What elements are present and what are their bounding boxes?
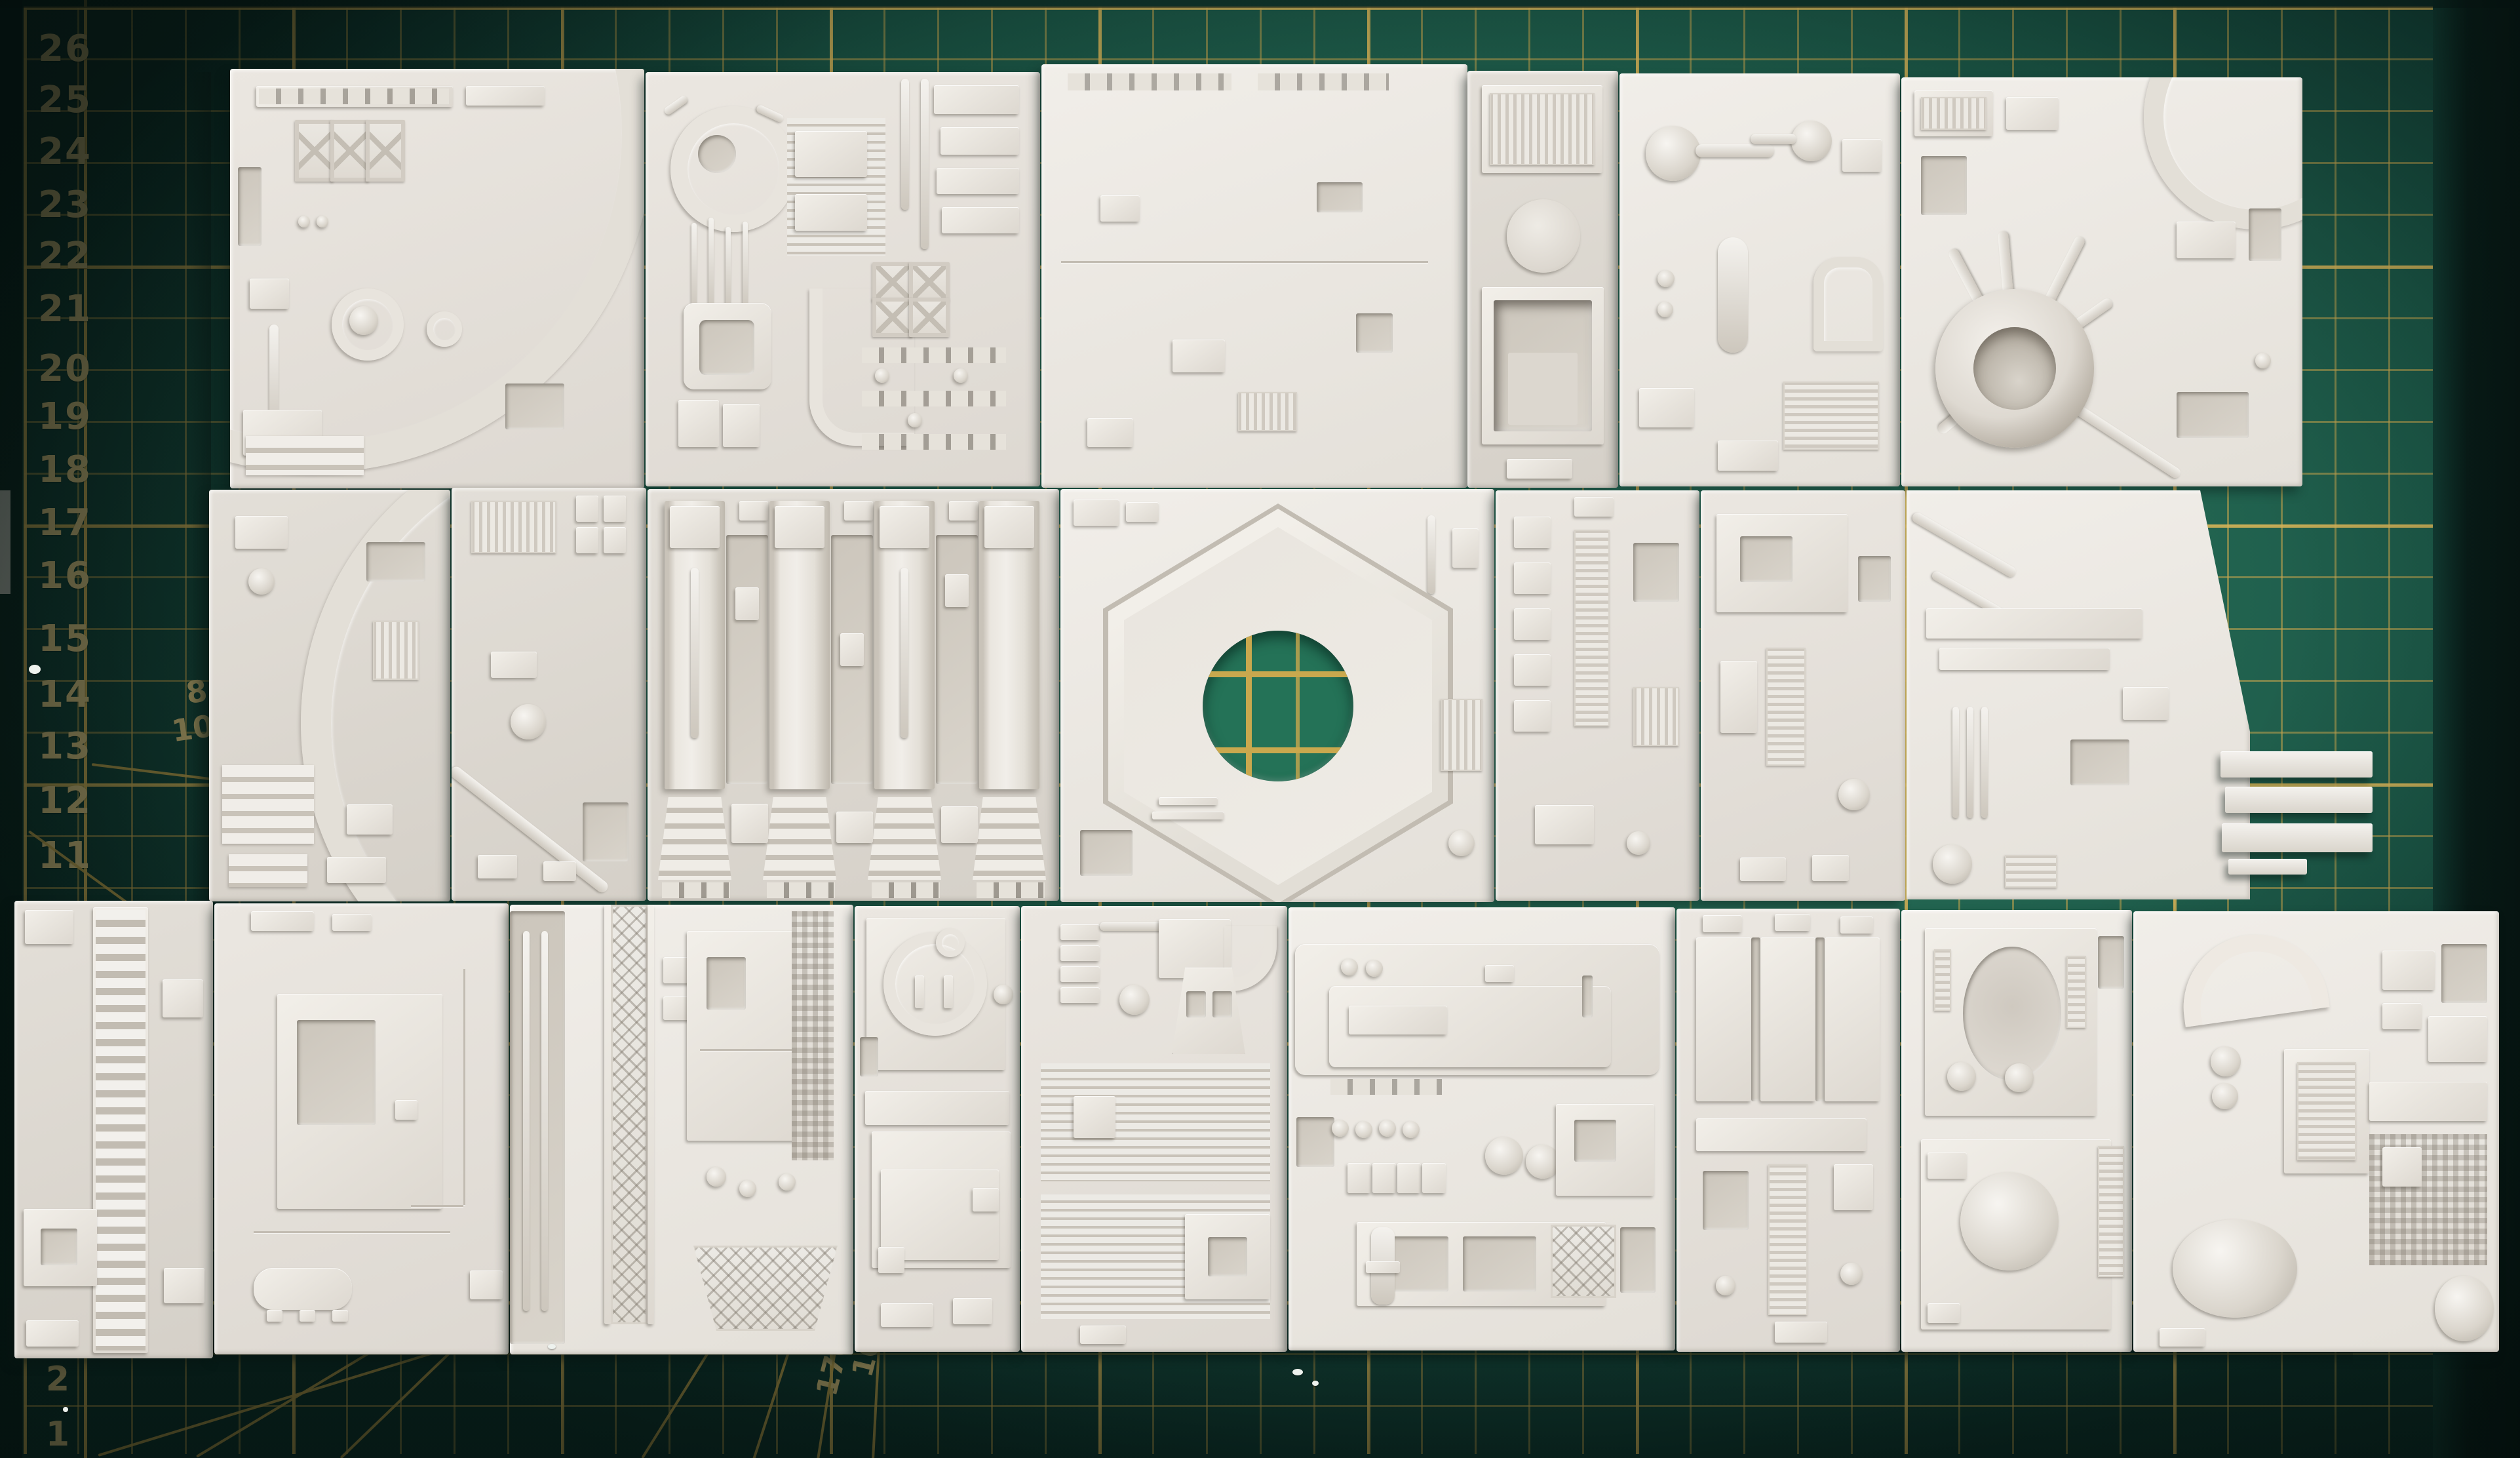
ruler-number: 17 bbox=[18, 502, 92, 544]
debris-speck bbox=[548, 1344, 556, 1349]
grid-line-through-hole bbox=[1203, 671, 1353, 677]
tile-oval-dome bbox=[1901, 910, 2132, 1352]
protruding-slat bbox=[2222, 823, 2373, 852]
slot-column bbox=[1768, 1164, 1808, 1315]
ring-button bbox=[936, 928, 965, 957]
tile-turret-ring-circuits bbox=[646, 72, 1040, 486]
debris-speck bbox=[63, 1407, 68, 1412]
tower-foot bbox=[973, 797, 1046, 880]
tile-domes-frame bbox=[1289, 907, 1675, 1350]
ruler-number: 12 bbox=[18, 779, 92, 822]
tile-greeble-columns bbox=[1496, 490, 1699, 901]
tile-truss-lattice bbox=[510, 905, 853, 1354]
ruler-number: 25 bbox=[18, 79, 92, 121]
tower-foot bbox=[658, 797, 731, 880]
arch-detail bbox=[1813, 257, 1883, 351]
crosshatch-box bbox=[366, 120, 405, 182]
window-slats bbox=[1490, 93, 1595, 165]
egg-dome bbox=[2435, 1276, 2494, 1341]
cylinder bbox=[1718, 237, 1748, 353]
debris-speck bbox=[29, 665, 41, 674]
ruler-number: 24 bbox=[18, 130, 92, 173]
tile-crater-spokes bbox=[1901, 77, 2302, 486]
table-edge-sliver bbox=[0, 490, 10, 594]
lattice-foot bbox=[693, 1246, 838, 1331]
ruler-number: 20 bbox=[18, 347, 92, 390]
oval-recess bbox=[1963, 947, 2061, 1080]
tile-vents-diagonal-pipe bbox=[452, 488, 646, 901]
tile-quarter-arc-crosshatch bbox=[230, 69, 644, 488]
hexagon-port-hole bbox=[1203, 631, 1353, 781]
large-dome bbox=[1485, 1137, 1523, 1175]
tile-hexagon-port bbox=[1060, 489, 1494, 902]
ladder-rungs bbox=[96, 910, 145, 1350]
large-dome bbox=[2173, 1219, 2297, 1318]
grid-line-through-hole bbox=[1203, 747, 1353, 753]
ruler-number: 18 bbox=[18, 448, 92, 491]
ruler-number: 16 bbox=[18, 555, 92, 597]
turret-ring bbox=[670, 106, 796, 232]
comb-teeth bbox=[1330, 1079, 1442, 1095]
photo-cutting-mat-scene: 26 25 24 23 22 21 20 19 18 17 16 15 14 1… bbox=[0, 0, 2520, 1458]
tile-window-recessed-box bbox=[1467, 71, 1618, 488]
mat-top-edge-shadow bbox=[0, 0, 2520, 8]
debris-speck bbox=[1292, 1369, 1303, 1375]
grid-line-through-hole bbox=[1296, 631, 1300, 781]
tile-plate-comb bbox=[1701, 490, 1905, 901]
round-button bbox=[1448, 830, 1475, 856]
crater-bowl bbox=[1973, 327, 2056, 410]
tower-foot bbox=[763, 797, 836, 880]
tile-four-towers bbox=[648, 489, 1059, 901]
tile-slot-plates bbox=[1677, 909, 1900, 1352]
ruler-number: 14 bbox=[18, 673, 92, 716]
tower-foot bbox=[868, 797, 941, 880]
protruding-slat bbox=[2225, 787, 2373, 813]
truss-column bbox=[611, 905, 648, 1324]
tile-plain-tabs bbox=[1041, 64, 1467, 488]
dotted-strip bbox=[792, 911, 834, 1160]
ruler-number: 22 bbox=[18, 235, 92, 277]
tile-curved-trench bbox=[209, 490, 450, 901]
debris-speck bbox=[1312, 1381, 1319, 1386]
tile-ladder-strip bbox=[14, 901, 213, 1358]
large-dome bbox=[1960, 1172, 2059, 1271]
protruding-slat bbox=[2228, 859, 2307, 875]
tile-ribbed-bands bbox=[1021, 906, 1287, 1352]
dial-ring bbox=[883, 932, 987, 1036]
tile-pipe-dense-greebles bbox=[2133, 911, 2499, 1352]
crosshatch-box bbox=[295, 120, 334, 182]
ruler-number: 26 bbox=[18, 28, 92, 70]
curved-wall bbox=[2144, 77, 2302, 229]
large-dome bbox=[1526, 1145, 1560, 1179]
ruler-number: 23 bbox=[18, 184, 92, 226]
protruding-slat bbox=[2220, 751, 2373, 778]
tile-chip-plate bbox=[214, 903, 509, 1354]
ruler-number: 19 bbox=[18, 395, 92, 438]
boat-greeble bbox=[254, 1268, 352, 1310]
crosshatch-box bbox=[330, 120, 370, 182]
tile-ring-dial bbox=[855, 906, 1020, 1352]
ruler-number: 15 bbox=[18, 618, 92, 660]
ruler-number: 21 bbox=[18, 288, 92, 330]
tile-slanted-edge-slats bbox=[1907, 490, 2250, 899]
flat-disc bbox=[1507, 199, 1580, 273]
tile-domes-cylinder bbox=[1619, 73, 1900, 486]
ruler-number: 13 bbox=[18, 725, 92, 768]
grid-line-through-hole bbox=[1246, 631, 1252, 781]
arch-pipe bbox=[2174, 925, 2329, 1027]
